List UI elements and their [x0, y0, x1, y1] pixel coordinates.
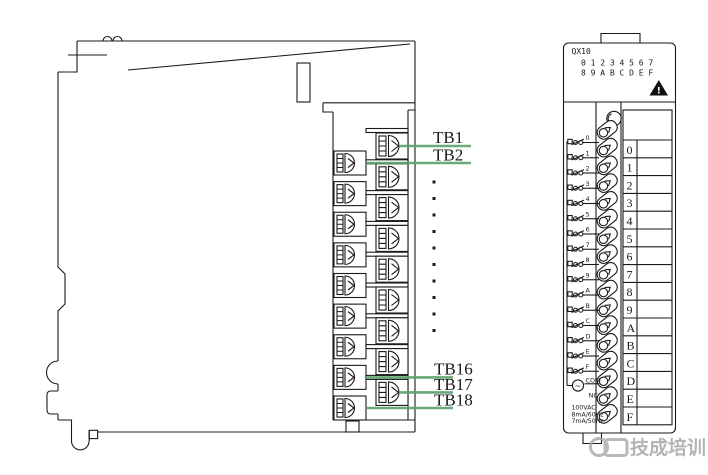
switch-channel-label: C [586, 317, 591, 325]
screw-terminal-outer [334, 182, 366, 206]
diagram-svg: TB1 TB2 TB16 TB17 TB18 QX10 0 1 2 3 4 5 … [0, 0, 708, 475]
com-label: COM [586, 376, 601, 384]
inner-terminal-column [366, 129, 408, 406]
terminal-shelf [366, 129, 408, 133]
led-row-1: 0 1 2 3 4 5 6 7 [581, 59, 653, 68]
continuation-dots [433, 181, 436, 333]
switch-channel-label: E [586, 348, 590, 356]
rating-line-3: 7mA/50Hz [572, 418, 604, 425]
outer-terminal-column [334, 151, 366, 420]
switch-channel-label: 2 [586, 165, 590, 173]
label-tb18: TB18 [434, 391, 473, 410]
continuation-dot [433, 329, 436, 332]
ac-symbol: ~ [575, 382, 582, 391]
top-mount-tab [601, 34, 640, 44]
continuation-dot [433, 181, 436, 184]
screw-terminal-outer [334, 243, 366, 267]
switch-channel-label: 0 [586, 134, 590, 142]
switch-channel-label: F [586, 363, 590, 371]
continuation-dot [433, 313, 436, 316]
terminal-block-notch [346, 421, 359, 432]
table-row-label: 6 [627, 250, 633, 264]
screw-terminal-inner [376, 349, 408, 375]
screw-terminal-outer [334, 365, 366, 389]
continuation-dot [433, 214, 436, 217]
screw-terminal-outer [334, 151, 366, 175]
screw-terminal-inner [376, 318, 408, 344]
table-row-label: D [627, 374, 636, 388]
label-tb2: TB2 [433, 146, 463, 165]
switch-channel-label: B [586, 302, 590, 310]
table-row-label: C [627, 356, 635, 370]
switch-channel-label: 9 [586, 271, 590, 279]
switch-channel-label: 3 [586, 180, 590, 188]
terminal-shelf [366, 283, 408, 287]
switch-channel-label: 7 [586, 241, 590, 249]
continuation-dot [433, 230, 436, 233]
screw-terminal-inner [376, 195, 408, 221]
left-module-side-view [47, 37, 416, 450]
continuation-dot [433, 280, 436, 283]
screw-terminal-inner [376, 287, 408, 313]
screw-terminal-inner [376, 164, 408, 190]
screw-terminal-outer [334, 396, 366, 420]
table-row-label: 5 [627, 232, 633, 246]
label-tb1: TB1 [433, 128, 463, 147]
watermark: 技成培训 [591, 436, 707, 459]
screw-terminal-outer [334, 335, 366, 359]
watermark-text: 技成培训 [630, 436, 706, 459]
screw-terminal-inner [376, 256, 408, 282]
continuation-dot [433, 296, 436, 299]
terminal-label-table: 0123456789ABCDEF [623, 110, 672, 425]
terminal-labels: TB1 TB2 TB16 TB17 TB18 [433, 128, 473, 410]
terminal-shelf [366, 221, 408, 225]
terminal-shelf [366, 252, 408, 256]
table-row-label: 1 [627, 161, 633, 175]
continuation-dot [433, 247, 436, 250]
continuation-dot [433, 263, 436, 266]
side-vent-slot [297, 63, 310, 102]
table-row-label: 0 [627, 143, 633, 157]
terminal-shelf [366, 345, 408, 349]
table-row-label: F [627, 410, 634, 424]
switch-channel-label: 1 [586, 149, 590, 157]
right-module-front-view: QX10 0 1 2 3 4 5 6 7 8 9 A B C D E F ! 0… [564, 34, 676, 444]
terminal-shelf [366, 314, 408, 318]
table-row-label: 2 [627, 178, 633, 192]
plc-terminal-wiring-diagram: TB1 TB2 TB16 TB17 TB18 QX10 0 1 2 3 4 5 … [0, 0, 708, 475]
nc-label: NC [589, 392, 599, 400]
switch-channel-label: D [586, 332, 591, 340]
table-row-label: 4 [627, 214, 633, 228]
table-row-label: 7 [627, 267, 633, 281]
table-row-label: 9 [627, 303, 633, 317]
screw-terminal-outer [334, 304, 366, 328]
table-row-label: 8 [627, 285, 633, 299]
table-row-label: E [627, 392, 634, 406]
switch-channel-label: A [586, 287, 591, 295]
table-row-label: B [627, 339, 635, 353]
model-label: QX10 [572, 47, 591, 56]
switch-channel-label: 6 [586, 226, 590, 234]
switch-channel-label: 4 [586, 195, 590, 203]
screw-terminal-outer [334, 212, 366, 236]
table-row-label: 3 [627, 196, 633, 210]
svg-text:!: ! [657, 87, 661, 97]
terminal-shelf [366, 191, 408, 195]
switch-channel-label: 8 [586, 256, 590, 264]
screw-terminal-inner [376, 225, 408, 251]
screw-terminal-outer [334, 274, 366, 298]
latch-block [89, 430, 97, 438]
table-row-label: A [627, 321, 636, 335]
continuation-dot [433, 197, 436, 200]
led-row-2: 8 9 A B C D E F [581, 69, 653, 78]
switch-channel-label: 5 [586, 210, 590, 218]
